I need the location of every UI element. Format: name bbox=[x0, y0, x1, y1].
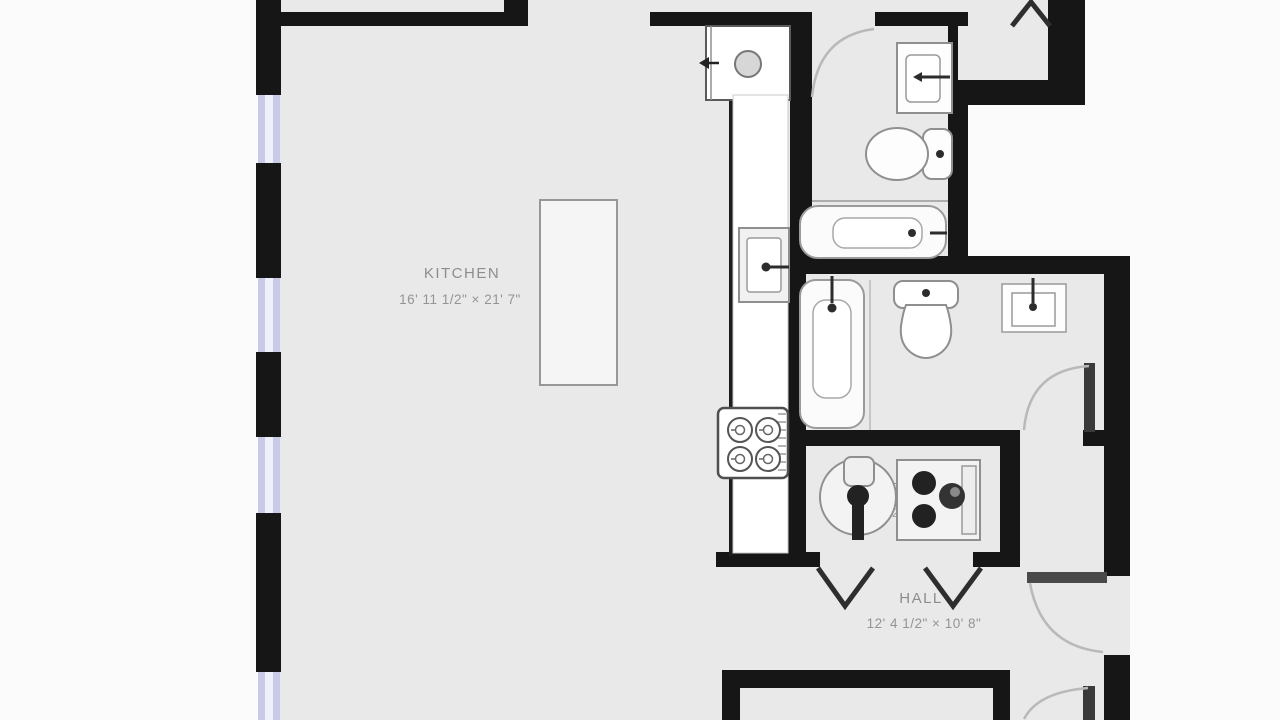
floor-areas bbox=[268, 0, 1130, 720]
kitchen-counter bbox=[733, 95, 788, 553]
hall-dimensions: 12' 4 1/2" × 10' 8" bbox=[867, 616, 982, 631]
bathroom1-toilet bbox=[866, 128, 952, 180]
dryer bbox=[897, 460, 980, 540]
bathroom1-bathtub bbox=[800, 206, 947, 258]
bathroom2-bathtub bbox=[800, 276, 864, 428]
floor-plan-drawing: KITCHEN 16' 11 1/2" × 21' 7" UTILITY 7' … bbox=[0, 0, 1280, 720]
cooktop bbox=[718, 408, 788, 478]
bathroom2-sink bbox=[1002, 278, 1066, 332]
kitchen-sink bbox=[739, 228, 789, 302]
window-2 bbox=[258, 278, 280, 352]
utility-fixtures bbox=[820, 457, 980, 540]
kitchen-label: KITCHEN bbox=[424, 265, 500, 282]
hall-label: HALL bbox=[899, 590, 943, 607]
kitchen-dimensions: 16' 11 1/2" × 21' 7" bbox=[399, 292, 521, 307]
window-3 bbox=[258, 437, 280, 513]
kitchen-island bbox=[540, 200, 617, 385]
floor-plan: KITCHEN 16' 11 1/2" × 21' 7" UTILITY 7' … bbox=[0, 0, 1280, 720]
window-1 bbox=[258, 95, 280, 163]
bathroom1-sink bbox=[897, 43, 952, 113]
window-4 bbox=[258, 672, 280, 720]
